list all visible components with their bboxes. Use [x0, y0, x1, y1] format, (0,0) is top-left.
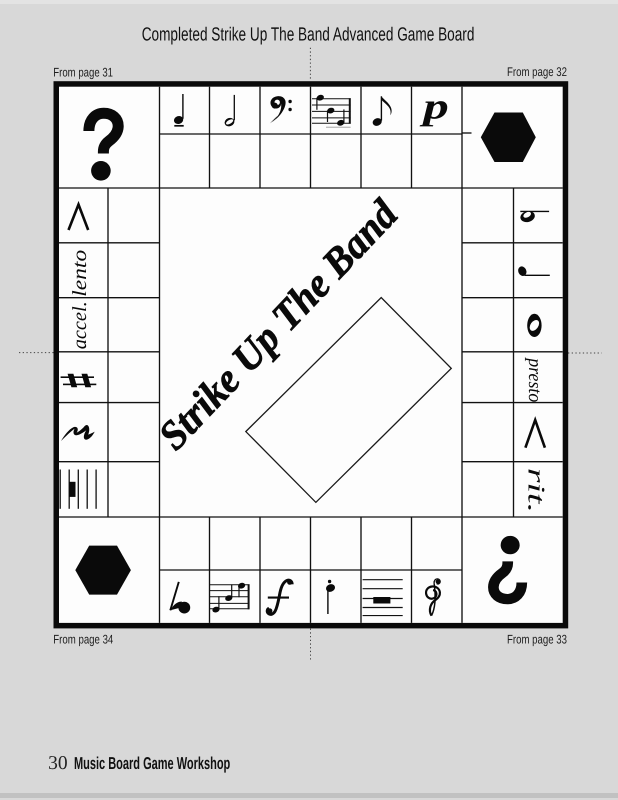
svg-text:From page 34: From page 34 — [53, 633, 113, 647]
svg-text:From page 32: From page 32 — [507, 65, 567, 79]
svg-text:p: p — [419, 87, 449, 128]
svg-text:Music Board Game Workshop: Music Board Game Workshop — [74, 753, 230, 773]
svg-text:30: 30 — [48, 753, 68, 774]
svg-text:From page 31: From page 31 — [53, 66, 113, 80]
svg-text:accel.: accel. — [69, 301, 91, 349]
svg-text:lento: lento — [69, 250, 91, 297]
svg-text:presto: presto — [524, 356, 545, 402]
svg-text:rit.: rit. — [523, 468, 549, 513]
svg-text:Completed Strike Up The Band A: Completed Strike Up The Band Advanced Ga… — [142, 24, 475, 45]
svg-text:From page 33: From page 33 — [507, 633, 567, 647]
